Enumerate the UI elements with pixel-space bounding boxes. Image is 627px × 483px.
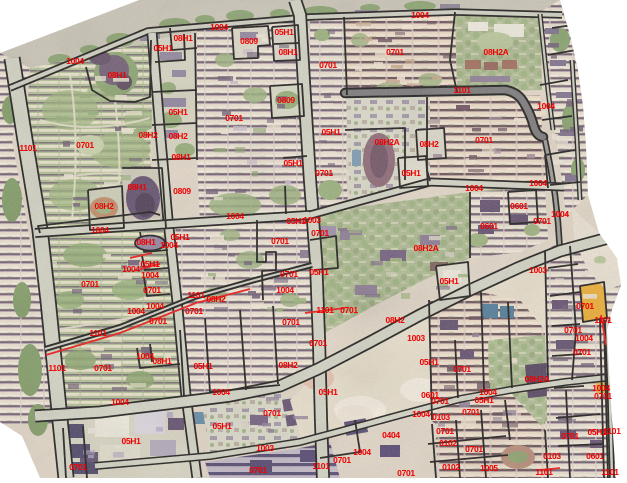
svg-text:1101: 1101	[535, 467, 553, 477]
svg-text:1004: 1004	[111, 397, 129, 407]
svg-text:1004: 1004	[160, 240, 178, 250]
svg-text:0701: 0701	[282, 317, 300, 327]
svg-text:1101: 1101	[594, 315, 612, 325]
svg-text:0809: 0809	[240, 36, 258, 46]
svg-text:0701: 0701	[397, 468, 415, 478]
svg-text:05H1: 05H1	[474, 395, 494, 405]
svg-text:0701: 0701	[249, 465, 267, 475]
svg-text:1004: 1004	[210, 22, 228, 32]
svg-text:1004: 1004	[226, 211, 244, 221]
svg-text:0701: 0701	[475, 135, 493, 145]
svg-text:1004: 1004	[141, 270, 159, 280]
svg-text:0601: 0601	[480, 221, 498, 231]
svg-text:0701: 0701	[453, 364, 471, 374]
svg-text:1004: 1004	[212, 387, 230, 397]
svg-text:1004: 1004	[276, 285, 294, 295]
svg-text:0601: 0601	[510, 201, 528, 211]
svg-text:0701: 0701	[81, 279, 99, 289]
svg-text:0701: 0701	[561, 431, 579, 441]
svg-text:08H1: 08H1	[152, 356, 172, 366]
svg-text:0701: 0701	[185, 306, 203, 316]
svg-text:05H1: 05H1	[401, 168, 421, 178]
svg-text:0701: 0701	[340, 305, 358, 315]
svg-text:0701: 0701	[94, 363, 112, 373]
svg-text:0701: 0701	[263, 408, 281, 418]
svg-text:1004: 1004	[353, 447, 371, 457]
svg-text:0102: 0102	[442, 462, 460, 472]
svg-text:1004: 1004	[551, 209, 569, 219]
svg-text:05H1: 05H1	[439, 276, 459, 286]
svg-text:0701: 0701	[271, 236, 289, 246]
svg-text:0701: 0701	[465, 444, 483, 454]
svg-text:1101: 1101	[453, 85, 471, 95]
svg-text:1004: 1004	[529, 178, 547, 188]
svg-text:08H1: 08H1	[127, 182, 147, 192]
svg-text:1004: 1004	[465, 183, 483, 193]
svg-text:1004: 1004	[411, 10, 429, 20]
svg-text:0404: 0404	[382, 430, 400, 440]
svg-text:08H2A: 08H2A	[525, 374, 550, 384]
svg-text:08H1: 08H1	[107, 70, 127, 80]
svg-text:08H2: 08H2	[94, 201, 114, 211]
svg-text:0701: 0701	[573, 347, 591, 357]
svg-text:0701: 0701	[280, 269, 298, 279]
svg-text:1101: 1101	[48, 363, 66, 373]
svg-text:0102: 0102	[439, 438, 457, 448]
svg-text:0701: 0701	[533, 216, 551, 226]
svg-text:1101: 1101	[312, 461, 330, 471]
svg-text:0103: 0103	[543, 451, 561, 461]
svg-text:1003: 1003	[529, 265, 547, 275]
svg-text:1003: 1003	[407, 333, 425, 343]
svg-text:08H2: 08H2	[385, 315, 405, 325]
svg-text:0701: 0701	[576, 301, 594, 311]
svg-text:0701: 0701	[594, 391, 612, 401]
svg-text:05H1: 05H1	[168, 107, 188, 117]
svg-text:08H2: 08H2	[419, 139, 439, 149]
svg-text:1004: 1004	[146, 301, 164, 311]
svg-text:1004: 1004	[412, 409, 430, 419]
svg-text:0701: 0701	[462, 407, 480, 417]
svg-text:0701: 0701	[311, 228, 329, 238]
svg-text:0701: 0701	[315, 168, 333, 178]
svg-text:1101: 1101	[89, 328, 107, 338]
svg-text:08H2: 08H2	[206, 294, 226, 304]
svg-text:0701: 0701	[436, 426, 454, 436]
svg-text:05H1: 05H1	[274, 27, 294, 37]
svg-text:1003: 1003	[256, 443, 274, 453]
svg-text:05H1: 05H1	[193, 361, 213, 371]
svg-text:0701: 0701	[143, 285, 161, 295]
svg-text:05H1: 05H1	[140, 259, 160, 269]
svg-text:0701: 0701	[76, 140, 94, 150]
svg-text:0103: 0103	[432, 412, 450, 422]
svg-text:0809: 0809	[173, 186, 191, 196]
svg-text:08H2A: 08H2A	[375, 137, 400, 147]
svg-text:05H1: 05H1	[419, 357, 439, 367]
svg-text:1101: 1101	[603, 426, 621, 436]
svg-text:1004: 1004	[122, 264, 140, 274]
svg-text:08H2: 08H2	[278, 360, 298, 370]
svg-text:05H1: 05H1	[283, 158, 303, 168]
svg-text:1101: 1101	[601, 467, 619, 477]
svg-text:05H1: 05H1	[321, 127, 341, 137]
svg-text:1005: 1005	[480, 463, 498, 473]
svg-text:08H2: 08H2	[168, 131, 188, 141]
svg-text:0809: 0809	[277, 95, 295, 105]
svg-text:1004: 1004	[575, 333, 593, 343]
svg-text:05H1: 05H1	[309, 267, 329, 277]
svg-text:08H2A: 08H2A	[484, 47, 509, 57]
svg-text:1003: 1003	[303, 215, 321, 225]
svg-text:1004: 1004	[127, 306, 145, 316]
svg-text:1004: 1004	[66, 56, 84, 66]
svg-text:05H1: 05H1	[121, 436, 141, 446]
svg-text:0701: 0701	[386, 47, 404, 57]
svg-text:0701: 0701	[319, 60, 337, 70]
svg-text:08H2A: 08H2A	[414, 243, 439, 253]
svg-text:0701: 0701	[69, 462, 87, 472]
svg-text:05H1: 05H1	[212, 421, 232, 431]
svg-text:0701: 0701	[225, 113, 243, 123]
svg-text:0701: 0701	[333, 455, 351, 465]
svg-text:1101: 1101	[19, 143, 37, 153]
svg-text:1101: 1101	[316, 305, 334, 315]
svg-text:05H1: 05H1	[318, 387, 338, 397]
svg-text:08H2: 08H2	[138, 130, 158, 140]
svg-text:0601: 0601	[586, 451, 604, 461]
svg-text:1101: 1101	[187, 290, 205, 300]
svg-text:0701: 0701	[309, 338, 327, 348]
svg-text:08H1: 08H1	[278, 47, 298, 57]
svg-text:05H1: 05H1	[153, 43, 173, 53]
svg-text:08H1: 08H1	[171, 152, 191, 162]
svg-text:0701: 0701	[149, 316, 167, 326]
svg-text:08H1: 08H1	[136, 237, 156, 247]
svg-text:0701: 0701	[431, 396, 449, 406]
svg-text:08H1: 08H1	[173, 33, 193, 43]
svg-text:1004: 1004	[537, 101, 555, 111]
svg-text:1004: 1004	[91, 225, 109, 235]
